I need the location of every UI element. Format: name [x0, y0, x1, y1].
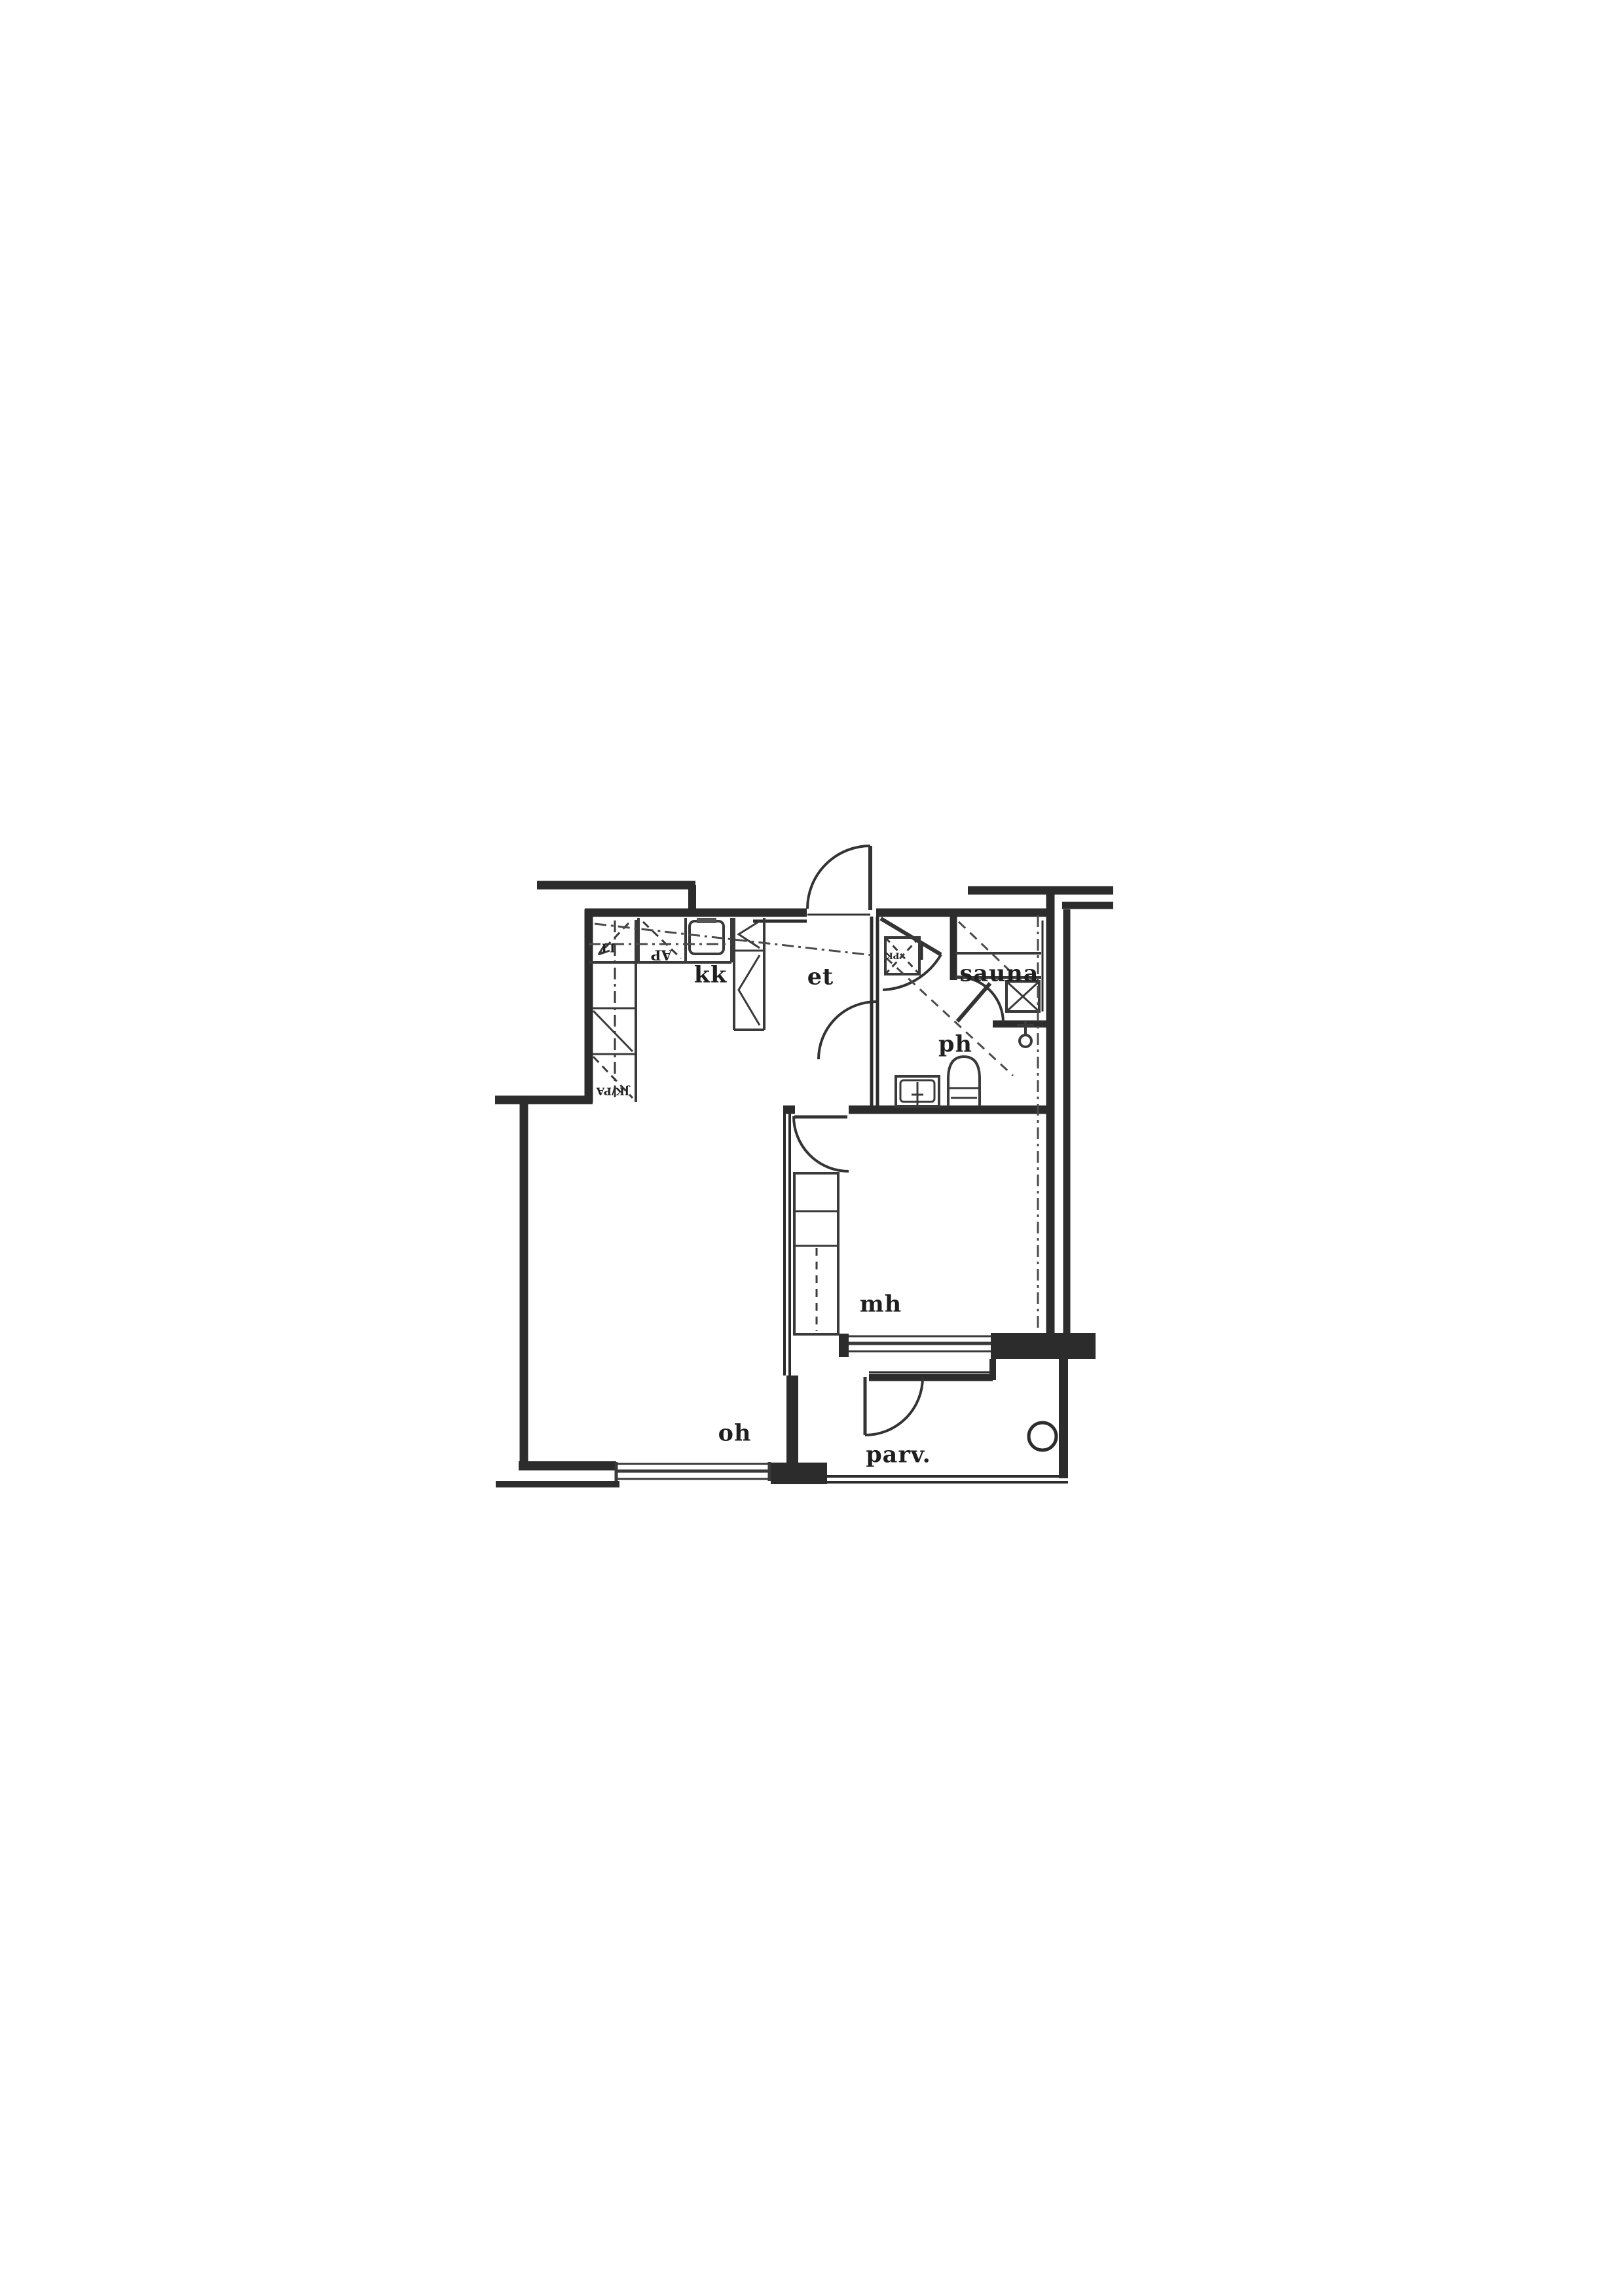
- et-oh-door: [819, 1002, 876, 1059]
- window-icon: [839, 1334, 991, 1357]
- balcony-t-foot: [771, 1463, 827, 1484]
- cabinet-door-swing: [593, 1011, 633, 1051]
- room-label-mh: mh: [860, 1291, 902, 1318]
- room-label-ph: ph: [938, 1031, 972, 1058]
- wardrobe-icon: [794, 1173, 838, 1334]
- appliance-label-dishwasher: AP: [651, 947, 672, 964]
- toilet-icon: [948, 1057, 980, 1106]
- door-swing-icon: [807, 846, 870, 909]
- washbasin-icon: [896, 1076, 939, 1106]
- cabinet-door-swing: [739, 955, 760, 1025]
- interior-walls: [771, 917, 1054, 1484]
- floor-plan-drawing: [0, 0, 1624, 2296]
- room-label-kk: kk: [694, 962, 728, 989]
- cabinet-door-swing: [739, 921, 760, 948]
- balcony-door: [865, 1377, 923, 1435]
- entry-door: [807, 846, 870, 915]
- window-icon: [616, 1462, 771, 1481]
- appliance-label-stove: LI: [601, 941, 615, 955]
- room-label-sauna: sauna: [960, 960, 1039, 987]
- room-label-et: et: [807, 964, 834, 991]
- door-swing-icon: [819, 1002, 876, 1059]
- balcony-circle-icon: [1029, 1423, 1056, 1450]
- mh-door: [794, 1116, 849, 1171]
- room-label-parv: parv.: [866, 1442, 931, 1468]
- shower-icon: [1017, 1021, 1034, 1047]
- appliance-label-washing-machine: PK: [885, 951, 899, 960]
- scanned-floor-plan-page: { "page": { "paper_color": "#ffffff", "i…: [0, 0, 1624, 2296]
- corner-wall-block: [991, 1333, 1096, 1359]
- appliance-label-fridge-freezer: JK/PA: [597, 1085, 630, 1098]
- door-swing-icon: [794, 1116, 849, 1171]
- room-label-oh: oh: [718, 1420, 752, 1447]
- sauna-door-leaf: [957, 983, 990, 1021]
- tall-cabinet: [734, 918, 764, 1030]
- door-swing-icon: [865, 1377, 923, 1435]
- windows: [616, 1334, 991, 1481]
